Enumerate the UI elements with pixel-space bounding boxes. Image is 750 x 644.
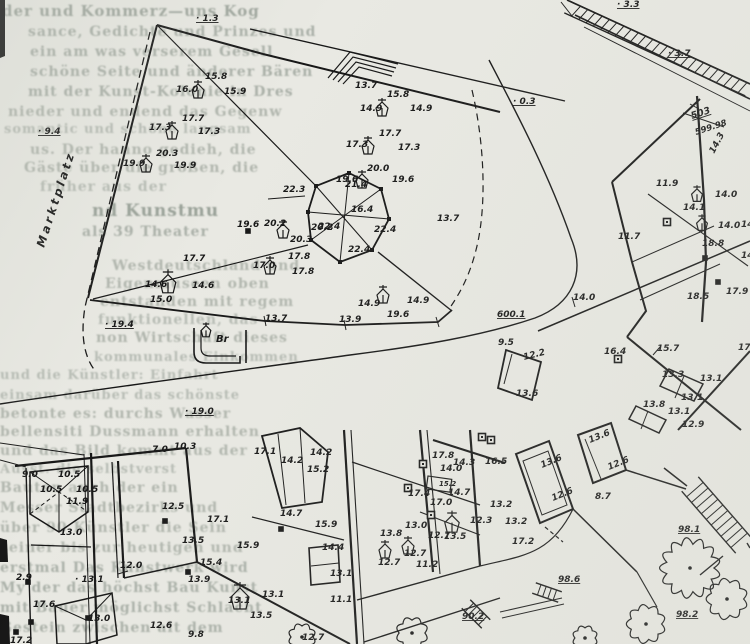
map-label: 15.9 <box>237 541 259 551</box>
map-label: 600.1 <box>497 310 525 320</box>
survey-square <box>702 255 708 261</box>
map-label: 7.0 <box>152 445 168 455</box>
map-label: 13.1 <box>330 569 352 579</box>
tree-cloud-center-dot <box>688 566 692 570</box>
map-path <box>538 241 750 331</box>
map-label: 13.9 <box>339 315 361 325</box>
tree-cloud-center-dot <box>410 631 414 635</box>
map-path <box>700 556 723 575</box>
map-label: 13.6 <box>516 389 538 399</box>
map-label: · 19.4 <box>105 320 134 330</box>
map-path <box>0 538 8 562</box>
map-label: 15.8 <box>205 72 227 82</box>
tree-cloud-icon <box>397 618 427 644</box>
survey-square-dot <box>422 463 424 465</box>
map-label: 12.5 <box>162 502 184 512</box>
monument-corner-dot <box>387 217 391 221</box>
map-label: 13.7 <box>355 81 378 91</box>
map-label: 13.5 <box>250 611 272 621</box>
map-label: 13.8 <box>380 529 402 539</box>
survey-square <box>185 569 191 575</box>
map-label: 15.8 <box>387 90 409 100</box>
monument-corner-dot <box>338 260 342 264</box>
survey-square <box>28 619 34 625</box>
survey-square <box>715 279 721 285</box>
map-path <box>0 0 5 58</box>
map-label: 13.5 <box>182 536 204 546</box>
map-label: 14.6 <box>192 281 214 291</box>
tree-cloud-center-dot <box>583 636 587 640</box>
map-label: 22.4 <box>374 225 396 235</box>
map-path <box>449 90 483 309</box>
map-path <box>573 509 637 572</box>
map-label: 9.0 <box>22 470 38 480</box>
map-label: 10.5 <box>58 470 80 480</box>
map-path <box>31 545 91 547</box>
map-label: 17.8 <box>432 451 454 461</box>
map-label: 12.3 <box>470 516 492 526</box>
map-label: 19.9 <box>174 161 196 171</box>
map-label: 17.1 <box>254 447 276 457</box>
map-label: 14.0 <box>718 221 740 231</box>
map-label: 19.6 <box>387 310 409 320</box>
map-label: 16.5 <box>485 457 507 467</box>
map-label: 11.9 <box>656 179 678 189</box>
map-label: 17.7 <box>182 114 205 124</box>
map-label: 12.7 <box>378 558 401 568</box>
map-label: 13.0 <box>60 528 82 538</box>
map-label: 17.7 <box>183 254 206 264</box>
map-path <box>629 406 666 433</box>
map-label: 17.8 <box>288 252 310 262</box>
map-label: 13.3 <box>662 370 684 380</box>
map-label: 22.4 <box>318 222 340 232</box>
map-label: 14.2 <box>281 456 303 466</box>
map-label: 14.3 <box>708 131 727 155</box>
map-path <box>637 572 657 607</box>
map-path <box>157 25 263 54</box>
map-label: 20.0 <box>367 164 389 174</box>
map-label: 19.9 <box>123 159 145 169</box>
map-label: 14.0 <box>715 190 737 200</box>
map-label: 15.4 <box>200 558 222 568</box>
map-label: 16.0 <box>176 85 198 95</box>
map-label: 12.7 <box>302 633 325 643</box>
map-label: 11.9 <box>66 497 88 507</box>
map-label: 13.6 <box>539 453 563 471</box>
tree-cloud-icon <box>573 626 597 644</box>
monument-corner-dot <box>314 184 318 188</box>
map-label: 13.9 <box>188 575 210 585</box>
map-path <box>197 562 350 644</box>
survey-square <box>278 526 284 532</box>
map-label: 14.6 <box>145 280 167 290</box>
map-label: 2.9 <box>16 573 32 583</box>
map-label: · 19.0 <box>185 407 214 417</box>
map-label: · 1.3 <box>196 14 219 24</box>
map-label: 11.2 <box>416 560 438 570</box>
map-label: 19.6 <box>237 220 259 230</box>
monument-corner-dot <box>379 187 383 191</box>
map-path <box>112 462 118 578</box>
map-label: 14.2 <box>310 448 332 458</box>
map-label: 15.0 <box>150 295 172 305</box>
tree-cloud-center-dot <box>644 622 648 626</box>
map-label: 18.8 <box>702 239 724 249</box>
map-path <box>344 430 357 644</box>
map-path <box>0 443 84 455</box>
map-label: 12.0 <box>120 561 142 571</box>
tree-cloud-center-dot <box>725 597 729 601</box>
map-label: 11.1 <box>330 595 352 605</box>
survey-square-dot <box>481 436 483 438</box>
map-path <box>612 99 700 182</box>
map-label: 17.4 <box>408 489 430 499</box>
map-label: 98.1 <box>678 525 700 535</box>
map-label: · 0.3 <box>513 97 536 107</box>
map-label: 15.7 <box>657 344 680 354</box>
map-label: 16.4 <box>604 347 626 357</box>
map-label: 10.3 <box>174 442 196 452</box>
stairs-icon-rungs <box>687 482 748 547</box>
map-label: · 3.7 <box>668 49 691 59</box>
map-label: 16.4 <box>351 205 373 215</box>
map-label: 18.5 <box>687 292 709 302</box>
map-path <box>584 27 750 111</box>
map-label: 14.7 <box>448 488 471 498</box>
map-label: 14.7 <box>280 509 303 519</box>
tree-sapling-icon <box>379 540 391 558</box>
map-label: 17.2 <box>512 537 534 547</box>
tree-sapling-icon <box>697 214 708 230</box>
map-label: 13.1 <box>262 590 284 600</box>
map-label: 9.8 <box>188 630 204 640</box>
map-label: 10.5 <box>40 485 62 495</box>
map-label: 17.3 <box>398 143 420 153</box>
survey-square-dot <box>430 514 432 516</box>
map-label: 17.0 <box>430 498 452 508</box>
map-label: 14.9 <box>410 104 432 114</box>
map-label: 19.6 <box>392 175 414 185</box>
map-label: 14.9 <box>358 299 380 309</box>
map-label: 14.1 <box>683 203 705 213</box>
map-label: 12.7 <box>404 549 427 559</box>
street-name-marktplatz: Marktplatz <box>34 149 78 249</box>
map-label: 13.7 <box>437 214 460 224</box>
map-label: 13.0 <box>88 614 110 624</box>
map-label: 20.2 <box>264 219 286 229</box>
survey-square <box>13 629 19 635</box>
map-label: 14.3 <box>453 458 475 468</box>
map-label: 12.9 <box>682 420 704 430</box>
map-label: 17.2 <box>10 636 32 644</box>
map-label: 13.1 <box>700 374 722 384</box>
map-label: 12.6 <box>150 621 172 631</box>
survey-square <box>162 518 168 524</box>
scanned-map-page: der und Kommerz—uns Kogsance, Gedichte u… <box>0 0 750 644</box>
map-label: 14.9 <box>407 296 429 306</box>
tree-sapling-icon <box>201 322 211 336</box>
map-label: 13.7 <box>265 314 288 324</box>
map-path <box>0 614 10 644</box>
fountain-label: Br <box>216 334 230 345</box>
monument-corner-dot <box>306 210 310 214</box>
tree-sapling-icon <box>692 185 703 201</box>
map-label: 11.7 <box>618 232 641 242</box>
map-label: 14.0 <box>573 293 595 303</box>
map-label: 10.5 <box>76 485 98 495</box>
map-label: 21.4 <box>345 180 367 190</box>
map-label: 14.9 <box>360 104 382 114</box>
map-label: 17.3 <box>198 127 220 137</box>
map-path <box>278 434 286 505</box>
map-label: 13.1 <box>681 393 703 403</box>
map-path <box>311 563 339 566</box>
survey-square-dot <box>490 439 492 441</box>
map-label: 17.8 <box>292 267 314 277</box>
map-label: 13.0 <box>405 521 427 531</box>
map-path <box>516 441 573 523</box>
map-path <box>268 196 305 199</box>
map-label: 22.3 <box>283 185 305 195</box>
map-label: 14.9 <box>741 220 750 230</box>
map-label: 13.1 <box>668 407 690 417</box>
map-label: 20.3 <box>156 149 178 159</box>
map-label: 14.4 <box>322 543 344 553</box>
survey-square-dot <box>666 221 668 223</box>
monument-corner-dot <box>370 248 374 252</box>
map-label: 15.2 <box>439 480 456 488</box>
map-path <box>357 566 480 600</box>
map-label: 13.2 <box>490 500 512 510</box>
map-label: 13.2 <box>505 517 527 527</box>
map-label: 13.1 <box>228 596 250 606</box>
map-label: 17.9 <box>726 287 748 297</box>
map-path <box>502 604 564 618</box>
map-label: 17.1 <box>207 515 229 525</box>
map-label: 17.9 <box>738 343 750 353</box>
map-label: 13.5 <box>444 532 466 542</box>
map-label: 13.8 <box>643 400 665 410</box>
hatch-band-rungs <box>572 6 748 93</box>
map-label: 15.2 <box>307 465 329 475</box>
map-label: 98.2 <box>676 610 698 620</box>
map-label: 17.0 <box>253 261 275 271</box>
map-label: 98.6 <box>558 575 580 585</box>
map-label: 17.7 <box>379 129 402 139</box>
map-path <box>626 470 686 489</box>
map-label: 9.5 <box>498 338 514 348</box>
map-path <box>504 354 512 384</box>
map-label: · 3.3 <box>617 0 640 10</box>
map-label: 15.9 <box>224 87 246 97</box>
map-label: 90.2 <box>462 612 484 622</box>
site-plan-svg: · 1.3· 9.4· 3.3· 3.7· 0.313.715.816.015.… <box>0 0 750 644</box>
map-path <box>678 351 750 430</box>
map-label: 17.3 <box>149 123 171 133</box>
map-label: 14.5 <box>741 251 750 261</box>
map-label: 8.7 <box>595 492 612 502</box>
map-label: · 9.4 <box>38 127 61 137</box>
map-label: 15.9 <box>315 520 337 530</box>
map-path <box>470 430 480 566</box>
map-label: 22.4 <box>348 245 370 255</box>
map-label: 17.6 <box>33 600 55 610</box>
map-label: 17.3 <box>346 140 368 150</box>
map-path <box>612 182 646 337</box>
map-label: · 13.1 <box>75 575 104 585</box>
tree-sapling-icon <box>445 511 459 533</box>
survey-square-dot <box>617 358 619 360</box>
map-label: 20.3 <box>290 235 312 245</box>
